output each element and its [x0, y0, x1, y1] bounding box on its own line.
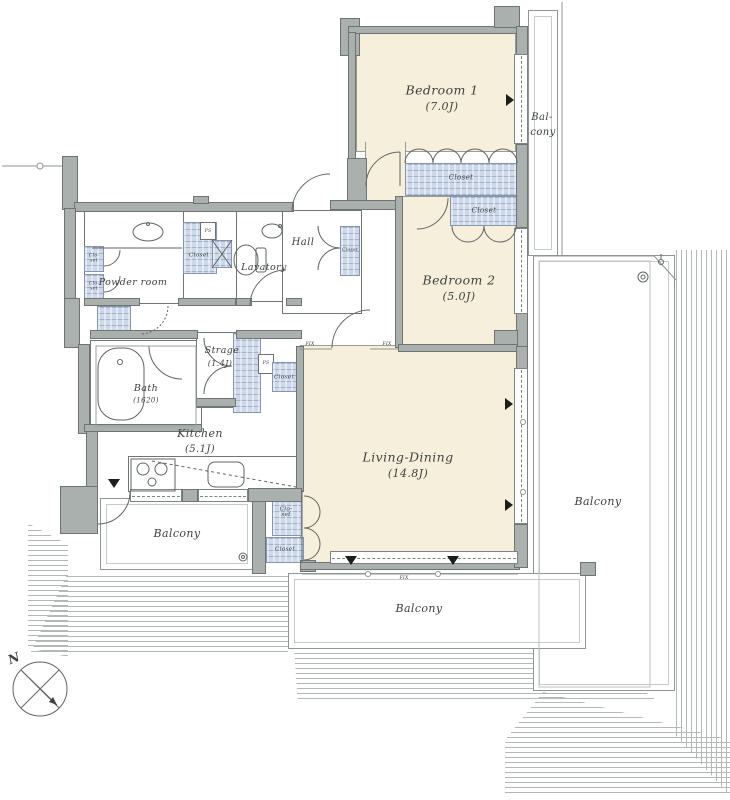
closet-powder-lower-label: Clo- set — [89, 281, 99, 291]
bedroom1-label: Bedroom 1 — [406, 83, 479, 96]
balcony-top-right-label-1: Bal- — [531, 113, 553, 124]
balcony-left-label: Balcony — [153, 528, 200, 540]
window-strip — [514, 368, 528, 524]
living-door-arc — [332, 310, 370, 348]
balcony-bottom-label: Balcony — [395, 603, 442, 615]
closet-bedroom1-label: Closet — [449, 174, 474, 181]
wall-segment — [286, 298, 302, 306]
window-strip — [330, 551, 518, 564]
wall-segment — [248, 488, 302, 502]
bedroom2-size: (5.0J) — [443, 291, 476, 303]
wall-segment — [64, 298, 80, 348]
balcony-top-right-label-2: cony — [530, 128, 555, 139]
wall-segment — [196, 398, 236, 407]
closet-utility-label: Closet — [189, 252, 209, 258]
wall-segment — [516, 144, 528, 228]
hatch-right-balcony-side — [676, 250, 730, 796]
closet-south-lower-label: Closet — [275, 546, 295, 552]
powder-room-label: Powder room — [99, 278, 168, 288]
closet-abbr-line2: set — [89, 286, 99, 291]
window-strip — [514, 228, 528, 314]
wall-segment — [86, 430, 98, 490]
lavatory-label: Lavatory — [241, 263, 287, 273]
wall-segment — [193, 196, 209, 204]
closet-south-upper-label: Clo- set — [280, 506, 293, 518]
wall-segment — [252, 490, 266, 574]
living-dining-label: Living-Dining — [363, 450, 454, 463]
wall-segment — [296, 346, 304, 492]
storage-label: Strage — [205, 346, 240, 356]
window-strip — [130, 489, 182, 502]
kitchen-label: Kitchen — [177, 428, 223, 440]
fix-window-label-1: FIX — [305, 342, 314, 347]
living-dining-size: (14.8J) — [388, 468, 428, 480]
room-bedroom1-lower — [365, 142, 406, 204]
compass-icon — [13, 662, 67, 716]
wall-segment — [64, 208, 76, 304]
balcony-right-label: Balcony — [574, 496, 621, 508]
wall-segment — [236, 298, 252, 306]
washer-pan — [212, 240, 232, 268]
hatch-left-balcony-bottom — [30, 576, 288, 654]
wall-segment — [348, 26, 518, 34]
closet-powder-upper-label: Clo- set — [89, 253, 99, 263]
wall-segment — [398, 344, 518, 352]
wall-segment — [60, 486, 98, 534]
closet-storage-side-label: Closet — [274, 374, 294, 380]
closet-bedroom2-label: Closet — [472, 207, 497, 214]
pipe-space-label-2: PS — [263, 361, 270, 366]
wall-segment — [90, 330, 198, 339]
wall-segment — [178, 298, 236, 306]
entrance-door-arc — [292, 174, 330, 212]
window-strip — [514, 54, 528, 144]
wall-segment — [330, 200, 397, 210]
wall-segment — [236, 330, 302, 339]
wall-segment — [347, 158, 367, 204]
room-storage — [196, 332, 236, 408]
wall-segment — [78, 344, 90, 434]
wall-segment — [84, 298, 140, 306]
bath-size: (1620) — [133, 397, 159, 404]
fix-window-label-3: FIX — [399, 576, 408, 581]
wall-segment — [580, 562, 596, 576]
floor-plan: Bedroom 1 (7.0J) Bedroom 2 (5.0J) Living… — [0, 0, 730, 800]
hall-label: Hall — [292, 238, 315, 249]
fix-window-label-2: FIX — [382, 342, 391, 347]
wall-segment — [516, 346, 528, 370]
window-strip — [198, 489, 248, 502]
bath-label: Bath — [134, 384, 158, 394]
wall-segment — [74, 202, 294, 212]
kitchen-size: (5.1J) — [185, 445, 215, 456]
compass-north-label: N — [6, 650, 22, 667]
bedroom1-size: (7.0J) — [426, 101, 459, 113]
kitchen-counter — [128, 456, 302, 492]
wall-segment — [395, 196, 403, 348]
pipe-space-label-1: PS — [205, 229, 212, 234]
wall-segment — [494, 6, 520, 28]
storage-size: (1.4J) — [208, 360, 233, 368]
wall-segment — [182, 489, 198, 502]
closet-hall-label: Closet — [342, 248, 358, 253]
wall-segment — [348, 32, 356, 162]
closet-abbr-line2: set — [280, 512, 293, 518]
closet-abbr-line2: set — [89, 258, 99, 263]
bedroom2-label: Bedroom 2 — [423, 273, 496, 286]
